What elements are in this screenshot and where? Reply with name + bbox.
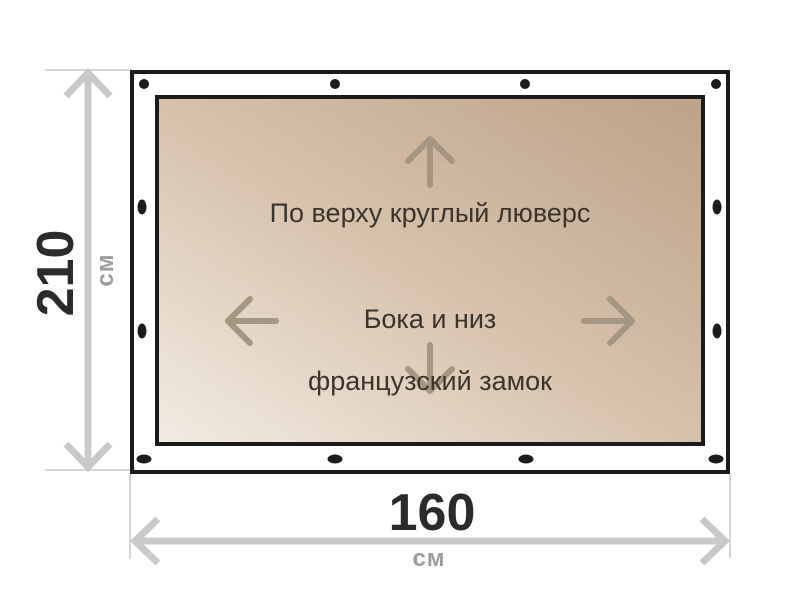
annotation-sides-line2: французский замок xyxy=(132,366,728,397)
grommet-slot xyxy=(137,455,152,464)
grommet-round xyxy=(711,79,721,89)
width-dimension-unit: см xyxy=(129,547,729,571)
grommet-slot xyxy=(519,455,534,464)
diagram-stage: По верху круглый люверс Бока и низ франц… xyxy=(0,0,800,600)
width-dimension-value: 160 xyxy=(132,487,732,539)
height-dimension-value: 210 xyxy=(28,173,84,373)
annotation-sides-line1: Бока и низ xyxy=(132,304,728,335)
grommet-round xyxy=(139,79,149,89)
grommet-round xyxy=(330,79,340,89)
annotation-top-edge: По верху круглый люверс xyxy=(132,198,728,229)
grommet-slot xyxy=(328,455,343,464)
grommet-slot xyxy=(709,455,724,464)
annotation-sides-bottom: Бока и низ французский замок xyxy=(132,273,728,428)
grommet-round xyxy=(520,79,530,89)
height-dimension-unit: см xyxy=(94,220,118,320)
